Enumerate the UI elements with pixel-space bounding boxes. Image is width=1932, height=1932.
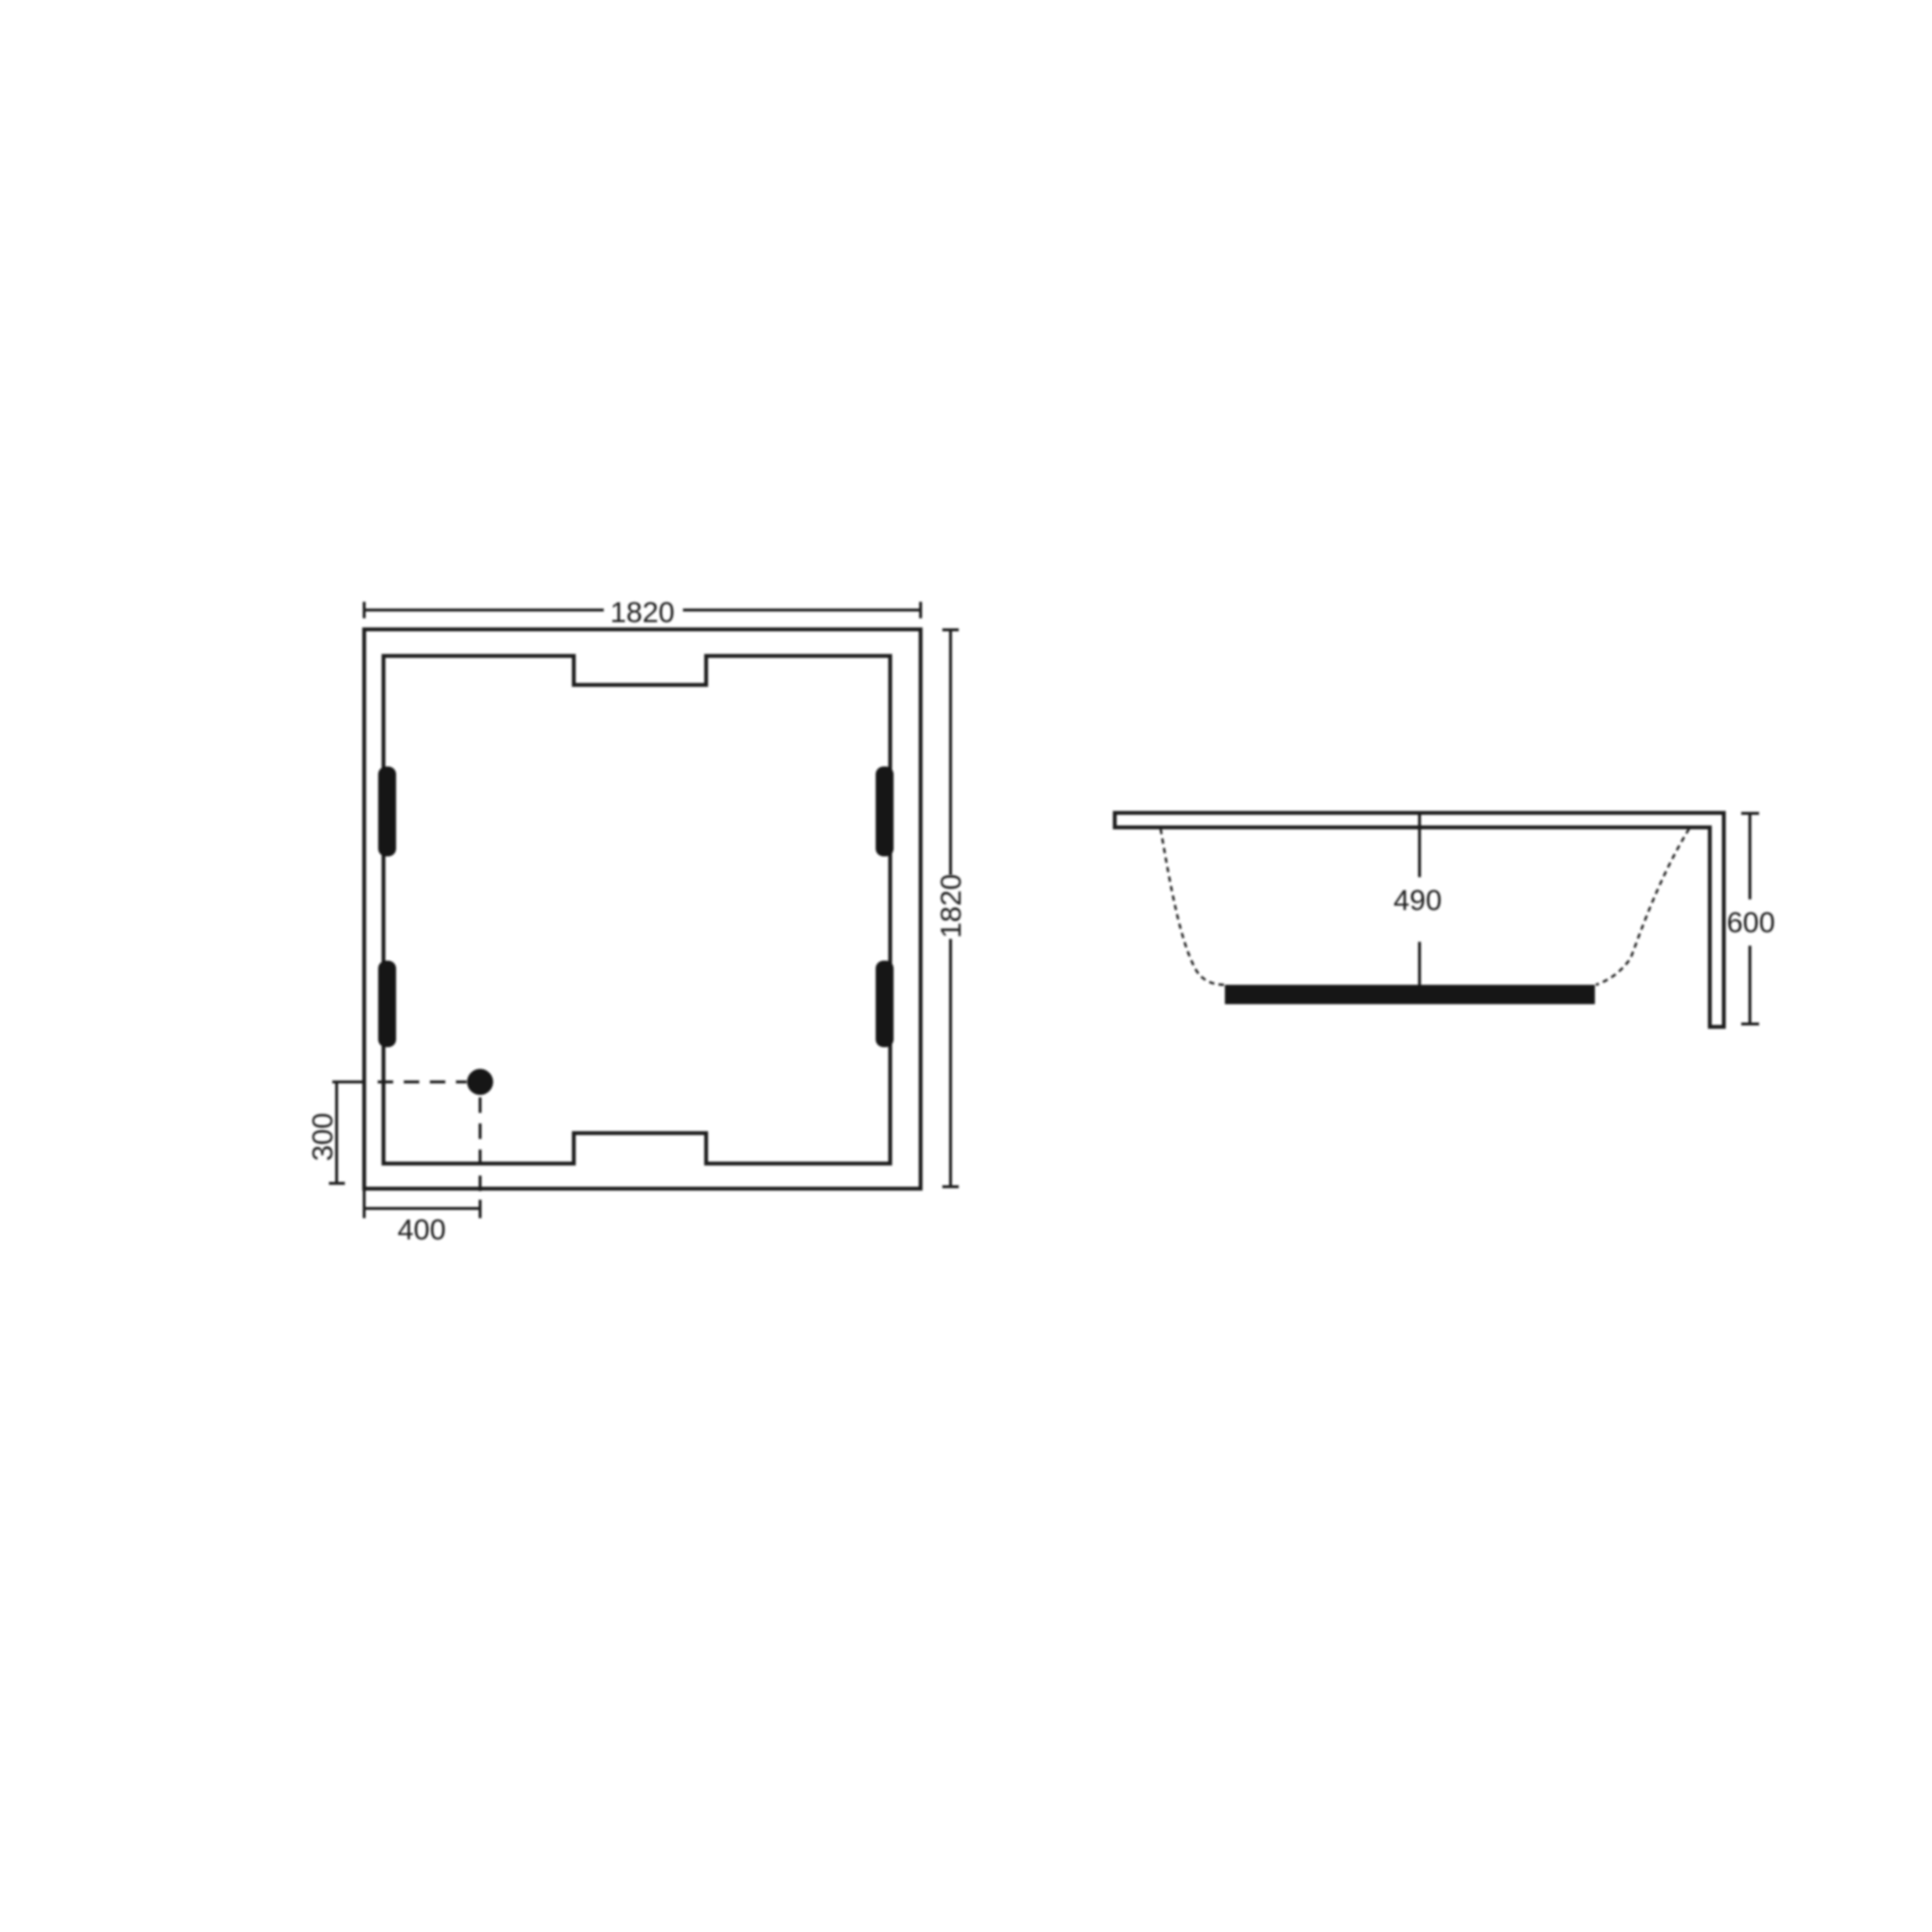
svg-text:490: 490 — [1393, 885, 1441, 917]
svg-text:400: 400 — [397, 1214, 445, 1246]
svg-text:1820: 1820 — [611, 597, 675, 629]
svg-text:1820: 1820 — [936, 874, 968, 939]
svg-text:300: 300 — [307, 1113, 339, 1161]
svg-text:600: 600 — [1726, 907, 1775, 939]
